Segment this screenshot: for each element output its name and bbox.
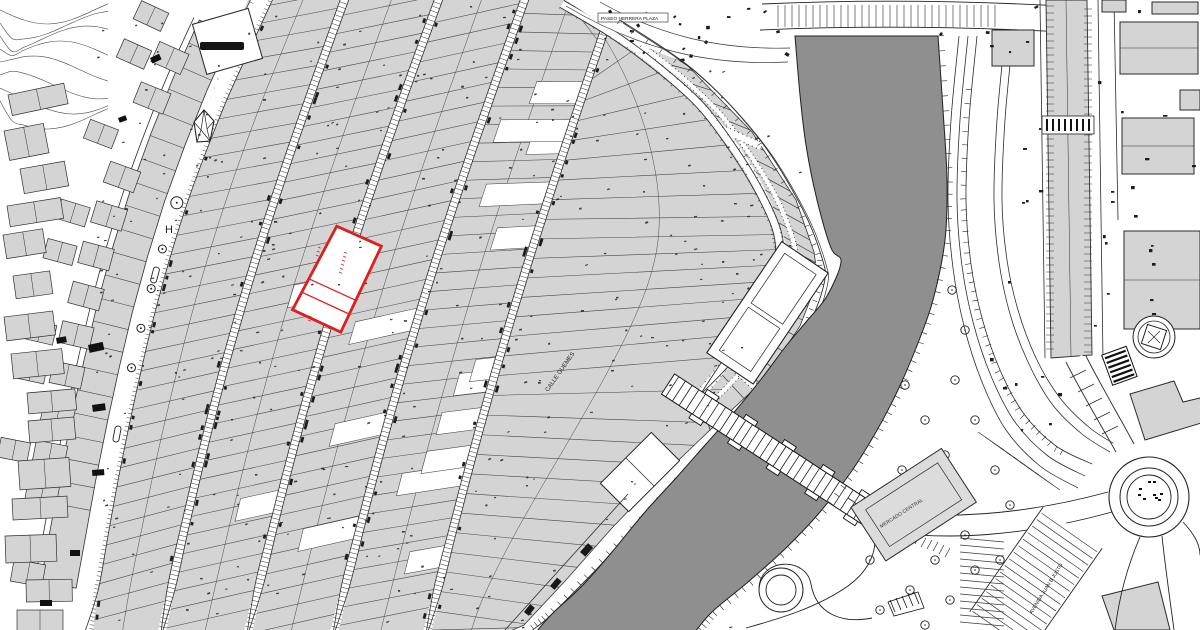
svg-text:PASEO HERRERA PLAZA: PASEO HERRERA PLAZA — [601, 16, 659, 22]
svg-text:H: H — [165, 224, 173, 236]
